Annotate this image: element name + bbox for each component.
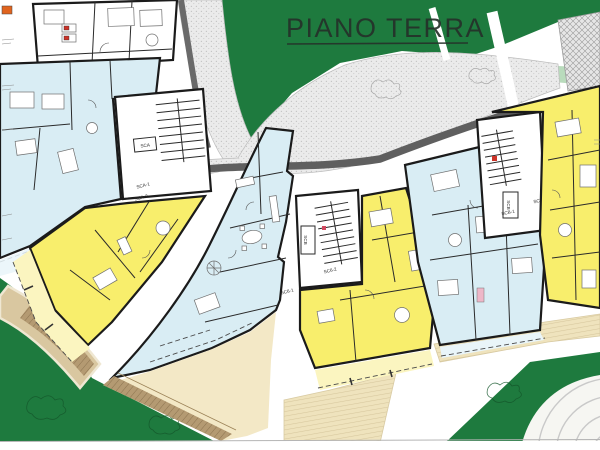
utility-marker	[322, 226, 326, 230]
floor-plan-page: SCA SCA-1 SCA-2 SCB	[0, 0, 600, 450]
legend-orange-box	[2, 6, 12, 14]
title-underline	[287, 43, 468, 44]
page-title: PIANO TERRA	[286, 13, 485, 43]
stair-core-b-east-label: SCB	[506, 200, 511, 209]
plan-title-group: PIANO TERRA	[286, 13, 485, 44]
utility-marker-red	[492, 156, 497, 161]
kitchen-appliance-red	[64, 26, 69, 30]
stair-core-b-label: SCB	[303, 235, 308, 244]
stair-core-b-east: SCB SCB-1 SCB-2	[477, 112, 548, 238]
bath-fixture	[477, 288, 484, 302]
sheet-margin-bottom	[0, 440, 600, 450]
kitchen-appliance-red	[64, 36, 69, 40]
stair-core-a: SCA SCA-1 SCA-2	[115, 89, 211, 202]
floor-plan-drawing: SCA SCA-1 SCA-2 SCB	[0, 0, 600, 450]
